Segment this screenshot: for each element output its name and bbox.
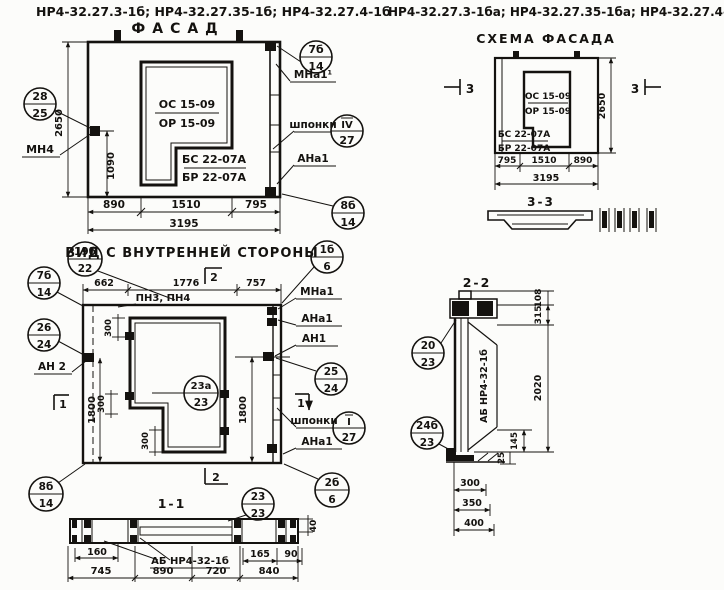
svg-text:ОС 15-09: ОС 15-09 xyxy=(525,92,571,102)
svg-text:3: 3 xyxy=(631,82,639,96)
svg-text:МН4: МН4 xyxy=(26,143,54,156)
svg-text:14: 14 xyxy=(340,216,356,229)
svg-text:25: 25 xyxy=(32,107,47,120)
svg-text:АН 2: АН 2 xyxy=(38,361,66,373)
scheme-title: СХЕМА ФАСАДА xyxy=(476,31,616,46)
callout-2b-6: 2б 6 xyxy=(284,464,349,507)
section-3-3-title: 3-3 xyxy=(527,195,555,209)
inner-view-drawing: ВИД С ВНУТРЕННЕЙ СТОРОНЫ 19б 22 662 1776… xyxy=(28,241,365,511)
svg-text:300: 300 xyxy=(97,395,107,413)
section-2-2-bottom-dims: 300 350 400 xyxy=(454,462,494,536)
svg-text:1: 1 xyxy=(59,398,67,411)
svg-text:АН1: АН1 xyxy=(302,333,326,345)
svg-text:108: 108 xyxy=(534,289,544,308)
anchor-square xyxy=(267,318,277,326)
svg-text:23: 23 xyxy=(420,437,435,449)
label-mna1-inner: МНа1 xyxy=(278,286,342,309)
svg-text:1: 1 xyxy=(297,397,305,410)
svg-text:ОР 15-09: ОР 15-09 xyxy=(525,107,571,117)
svg-text:19б: 19б xyxy=(74,246,96,258)
svg-text:22: 22 xyxy=(78,263,93,275)
callout-23a-23: 23а 23 xyxy=(152,376,218,410)
label-ab-nr4-vertical: АБ НР4-32-1б xyxy=(479,349,490,423)
panel-mark-top: БС 22-07А xyxy=(182,153,246,166)
svg-text:1090: 1090 xyxy=(106,152,117,180)
svg-text:шпонки: шпонки xyxy=(289,119,336,131)
svg-text:300: 300 xyxy=(460,478,480,489)
svg-text:6: 6 xyxy=(323,261,330,273)
panel-mark-bottom: БР 22-07А xyxy=(182,171,246,184)
window-mark-top: ОС 15-09 xyxy=(159,98,215,111)
svg-text:7б: 7б xyxy=(37,270,52,282)
svg-text:25: 25 xyxy=(324,366,339,378)
anchor-square xyxy=(265,42,276,51)
drawing-sheet: НР4-32.27.3-1б; НР4-32.27.35-1б; НР4-32.… xyxy=(0,0,724,590)
svg-text:23: 23 xyxy=(194,397,209,409)
callout-26-24: 26 24 xyxy=(28,319,84,355)
svg-text:300: 300 xyxy=(141,432,151,450)
section-1-flag-left: 1 xyxy=(54,395,69,411)
blueprint-svg: НР4-32.27.3-1б; НР4-32.27.35-1б; НР4-32.… xyxy=(0,0,724,590)
label-mna1-facade: МНа1¹ xyxy=(276,64,336,82)
section-2-flag-bottom: 2 xyxy=(205,468,228,484)
svg-text:14: 14 xyxy=(39,498,54,510)
section-1-1-title: 1-1 xyxy=(158,496,187,511)
label-shponki-facade: шпонки ІV 27 xyxy=(273,115,363,149)
dim-40: 40 xyxy=(298,515,319,536)
svg-text:890: 890 xyxy=(103,199,125,211)
callout-8b-14-inner: 8б 14 xyxy=(29,464,85,511)
label-ana1-top: АНа1 xyxy=(278,313,342,326)
callout-23-23: 23 23 xyxy=(228,488,274,521)
svg-text:160: 160 xyxy=(87,547,107,558)
section-2-2-head xyxy=(450,291,497,318)
dim-1090: 1090 xyxy=(95,131,117,197)
svg-text:23: 23 xyxy=(421,357,436,369)
svg-text:8б: 8б xyxy=(340,199,356,212)
window-mark-bottom: ОР 15-09 xyxy=(159,117,215,130)
svg-text:145: 145 xyxy=(510,432,520,450)
anchor-square xyxy=(267,444,277,453)
svg-text:2б: 2б xyxy=(325,477,340,489)
dim-2650-scheme: 2650 xyxy=(597,58,616,153)
svg-text:І: І xyxy=(347,417,351,428)
svg-text:8б: 8б xyxy=(39,481,54,493)
lifting-mark xyxy=(236,30,243,41)
svg-text:400: 400 xyxy=(464,518,484,529)
svg-text:1800: 1800 xyxy=(87,396,98,424)
svg-text:1510: 1510 xyxy=(171,199,200,211)
anchor-square-an2 xyxy=(84,353,94,362)
svg-text:40: 40 xyxy=(309,520,319,533)
svg-text:26: 26 xyxy=(37,322,52,334)
svg-text:720: 720 xyxy=(206,566,227,577)
svg-text:890: 890 xyxy=(574,156,593,166)
dim-2650-facade: 2650 xyxy=(54,42,88,197)
svg-text:25: 25 xyxy=(497,452,507,464)
svg-text:БР 22-07А: БР 22-07А xyxy=(498,144,550,154)
facade-bottom-dims: 890 1510 795 3195 xyxy=(88,197,280,234)
callout-8b-14-facade: 8б 14 xyxy=(282,194,364,229)
svg-text:662: 662 xyxy=(94,278,114,289)
svg-text:ІV: ІV xyxy=(341,120,353,131)
section-3-3-profile xyxy=(488,208,656,232)
svg-text:300: 300 xyxy=(104,319,114,337)
svg-text:27: 27 xyxy=(339,134,354,147)
svg-text:28: 28 xyxy=(32,90,47,103)
svg-text:23: 23 xyxy=(251,491,266,503)
svg-text:3195: 3195 xyxy=(169,218,198,230)
scheme-drawing: СХЕМА ФАСАДА ОС 15-09 ОР 15-09 БС 22-07А… xyxy=(444,31,661,232)
header-left: НР4-32.27.3-1б; НР4-32.27.35-1б; НР4-32.… xyxy=(36,4,391,19)
anchor-square xyxy=(267,307,277,315)
svg-text:1800: 1800 xyxy=(238,396,249,424)
svg-text:АНа1: АНа1 xyxy=(301,436,332,448)
svg-text:165: 165 xyxy=(250,549,270,560)
section-2-2-body: АБ НР4-32-1б xyxy=(455,318,497,452)
svg-text:МНа1: МНа1 xyxy=(300,286,334,298)
svg-text:3195: 3195 xyxy=(533,173,559,184)
inner-view-title: ВИД С ВНУТРЕННЕЙ СТОРОНЫ xyxy=(65,245,318,261)
svg-text:795: 795 xyxy=(245,199,267,211)
section-1-flag-right: 1 xyxy=(295,394,309,410)
svg-text:АНа1: АНа1 xyxy=(301,313,332,325)
sheet-headers: НР4-32.27.3-1б; НР4-32.27.35-1б; НР4-32.… xyxy=(36,4,724,19)
svg-text:1510: 1510 xyxy=(531,156,556,166)
svg-text:24б: 24б xyxy=(416,420,438,432)
lifting-mark xyxy=(114,30,121,41)
svg-text:2650: 2650 xyxy=(597,92,608,119)
svg-text:2020: 2020 xyxy=(533,374,544,401)
label-ana1-facade: АНа1 xyxy=(277,153,336,184)
label-ana1-bottom: АНа1 xyxy=(283,436,342,454)
section-3-flag-left: 3 xyxy=(444,79,474,96)
label-an1: АН1 xyxy=(275,333,338,356)
svg-text:90: 90 xyxy=(284,549,298,560)
svg-text:757: 757 xyxy=(246,278,266,289)
svg-text:3: 3 xyxy=(466,82,474,96)
svg-text:27: 27 xyxy=(342,432,357,444)
svg-text:315: 315 xyxy=(534,306,544,325)
scheme-bottom-dims: 795 1510 890 3195 xyxy=(495,153,598,190)
svg-text:20: 20 xyxy=(421,340,436,352)
svg-text:МНа1¹: МНа1¹ xyxy=(294,69,333,81)
svg-text:БС 22-07А: БС 22-07А xyxy=(498,130,550,140)
svg-text:23а: 23а xyxy=(191,381,212,392)
svg-text:1б: 1б xyxy=(320,244,335,256)
svg-text:6: 6 xyxy=(328,494,335,506)
svg-text:795: 795 xyxy=(498,156,517,166)
svg-text:890: 890 xyxy=(153,566,174,577)
svg-text:14: 14 xyxy=(37,287,52,299)
section-2-2-title: 2-2 xyxy=(463,275,492,290)
section-1-1-profile xyxy=(70,519,298,543)
svg-text:2: 2 xyxy=(212,471,220,484)
section-1-1-drawing: 1-1 23 23 xyxy=(68,488,319,582)
section-3-flag-right: 3 xyxy=(631,79,661,96)
svg-text:745: 745 xyxy=(91,566,112,577)
facade-title: ФАСАД xyxy=(131,21,224,37)
svg-text:350: 350 xyxy=(462,498,482,509)
label-an2: АН 2 xyxy=(34,361,86,374)
svg-text:1776: 1776 xyxy=(173,278,200,289)
section-2-2-drawing: 2-2 АБ НР4-32-1б xyxy=(411,275,554,536)
svg-text:24: 24 xyxy=(37,339,52,351)
callout-25-24: 25 24 xyxy=(276,358,347,395)
dim-165-90: 165 90 xyxy=(243,548,302,565)
svg-text:24: 24 xyxy=(324,383,339,395)
svg-text:2: 2 xyxy=(210,271,218,284)
facade-drawing: ФАСАД ОС 15-09 ОР 15-09 БС 22-07А БР 22-… xyxy=(22,21,364,234)
dim-160: 160 xyxy=(75,543,118,562)
section-2-flag-top: 2 xyxy=(205,268,222,284)
anchor-square xyxy=(265,187,276,197)
svg-text:7б: 7б xyxy=(308,43,324,56)
callout-20-23: 20 23 xyxy=(412,320,456,369)
svg-text:840: 840 xyxy=(259,566,280,577)
svg-text:шпонки: шпонки xyxy=(290,415,337,427)
svg-text:АНа1: АНа1 xyxy=(297,153,328,165)
header-right: НР4-32.27.3-1ба; НР4-32.27.35-1ба; НР4-3… xyxy=(388,5,724,19)
callout-24b-23: 24б 23 xyxy=(411,417,452,451)
svg-text:ПН3, ПН4: ПН3, ПН4 xyxy=(136,293,191,304)
anchor-square-an1 xyxy=(263,352,274,361)
